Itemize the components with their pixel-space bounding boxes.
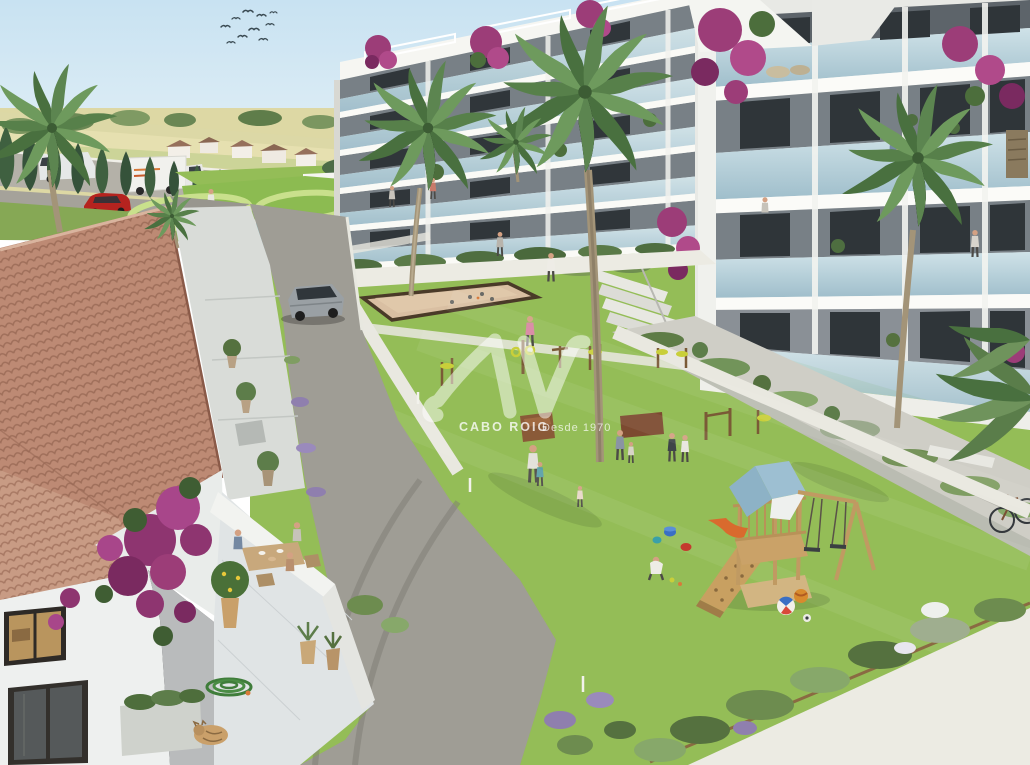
watermark-brand: CABO ROIG xyxy=(459,420,549,434)
wall-planter xyxy=(120,689,205,756)
house-glass-door xyxy=(8,680,88,765)
render-image: CABO ROIG Desde 1970 xyxy=(0,0,1030,765)
watermark-tagline: Desde 1970 xyxy=(542,422,611,434)
